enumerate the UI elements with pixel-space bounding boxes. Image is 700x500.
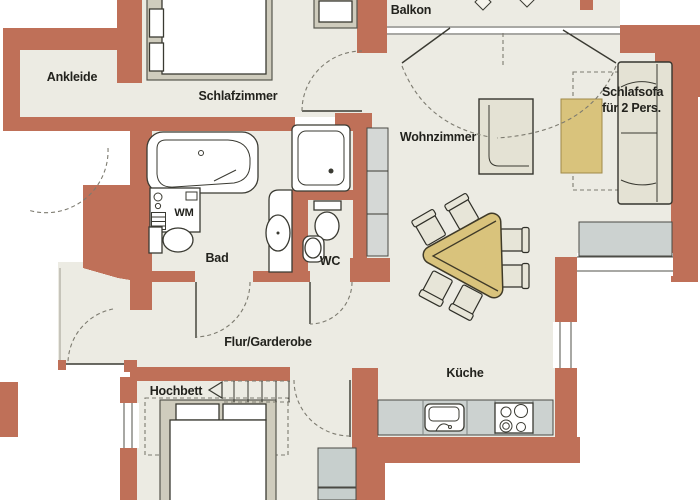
wall-segment xyxy=(117,0,142,83)
coffee-table-icon xyxy=(561,99,602,173)
room-label-flur: Flur/Garderobe xyxy=(224,335,312,349)
wall-segment xyxy=(555,257,577,322)
wall-segment xyxy=(58,360,66,370)
chair-icon xyxy=(500,228,529,253)
cabinet-icon xyxy=(318,448,356,487)
label-schlafsofa-line1: Schlafsofa xyxy=(602,85,664,99)
toilet-icon xyxy=(163,228,193,252)
window-hochbett xyxy=(118,403,139,448)
wc-basin-icon xyxy=(305,238,321,258)
bed-mattress xyxy=(170,420,266,500)
sink-drain xyxy=(277,232,280,235)
wall-segment xyxy=(353,113,367,282)
wall-segment xyxy=(357,0,387,53)
cabinet-icon xyxy=(318,488,356,500)
room-label-bad: Bad xyxy=(205,251,228,265)
shower-drain xyxy=(329,169,334,174)
wall-segment xyxy=(373,437,580,463)
wall-segment xyxy=(120,448,137,500)
room-label-schlafzimmer: Schlafzimmer xyxy=(199,89,278,103)
bed-pillow-icon xyxy=(150,43,164,71)
bed-mattress xyxy=(162,0,266,74)
wall-segment xyxy=(120,377,137,403)
wall-segment xyxy=(143,271,195,282)
kueche-furniture xyxy=(378,400,553,435)
bed-pillow-icon xyxy=(176,404,219,420)
chair-icon xyxy=(500,264,529,289)
wm-label: WM xyxy=(174,207,193,219)
room-label-wc: WC xyxy=(320,254,341,268)
floor-plan: WM xyxy=(0,0,700,500)
room-label-kueche: Küche xyxy=(446,366,483,380)
sideboard-icon xyxy=(579,222,672,256)
wall-segment xyxy=(580,0,593,10)
wall-segment xyxy=(350,258,390,282)
wall-segment xyxy=(3,28,20,118)
room-label-hochbett: Hochbett xyxy=(150,384,204,398)
room-label-ankleide: Ankleide xyxy=(47,70,98,84)
wall-segment xyxy=(124,360,137,372)
room-label-wohnzimmer: Wohnzimmer xyxy=(400,130,477,144)
wall-segment xyxy=(620,25,700,53)
bed-pillow-icon xyxy=(150,9,164,37)
wc-toilet-tank xyxy=(314,201,341,210)
wall-segment xyxy=(0,382,18,437)
bathtub-icon xyxy=(147,132,258,193)
wall-segment-angled xyxy=(83,185,130,280)
shelf-unit-icon xyxy=(367,128,388,256)
wall-segment xyxy=(130,367,290,381)
wall-segment xyxy=(671,97,698,282)
wall-segment xyxy=(555,368,577,440)
shower-icon xyxy=(292,125,350,191)
window-kueche xyxy=(553,322,579,368)
bed-pillow-icon xyxy=(223,404,266,420)
wall-segment xyxy=(3,28,120,50)
nightstand-top xyxy=(319,1,352,22)
toilet-tank xyxy=(149,227,162,253)
room-label-balkon: Balkon xyxy=(391,3,431,17)
label-schlafsofa-line2: für 2 Pers. xyxy=(602,101,661,115)
